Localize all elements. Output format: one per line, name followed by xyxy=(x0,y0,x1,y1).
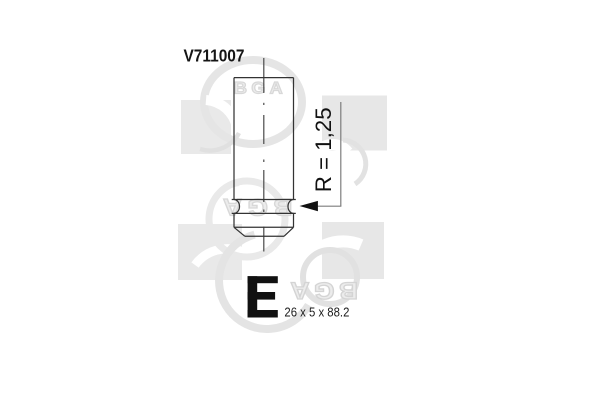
svg-text:BGA: BGA xyxy=(218,193,293,220)
svg-text:BGA: BGA xyxy=(286,277,358,304)
svg-text:26 x 5 x 88.2: 26 x 5 x 88.2 xyxy=(284,305,349,320)
svg-text:V711007: V711007 xyxy=(184,45,245,65)
svg-text:R = 1,25: R = 1,25 xyxy=(311,107,336,192)
svg-text:BGA: BGA xyxy=(234,80,287,98)
